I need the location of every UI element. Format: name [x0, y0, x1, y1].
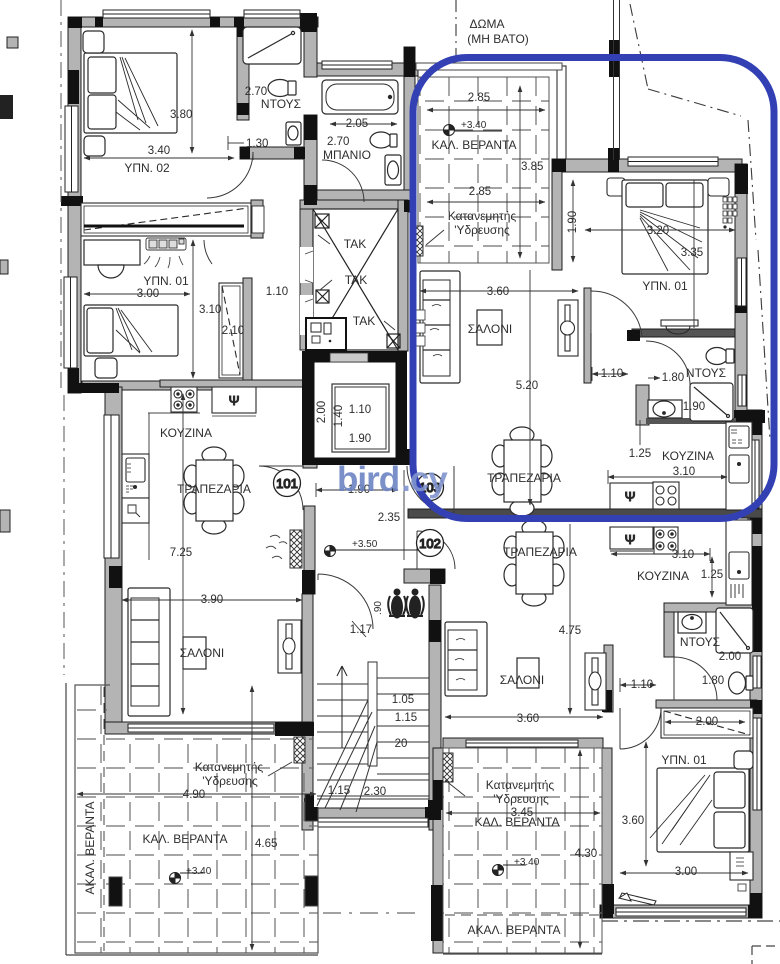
- svg-text:1.10: 1.10: [266, 286, 288, 298]
- svg-text:2.10: 2.10: [222, 325, 244, 337]
- svg-text:ΚΟΥΖΙΝΑ: ΚΟΥΖΙΝΑ: [662, 449, 714, 463]
- svg-text:Ψ: Ψ: [229, 393, 240, 408]
- svg-text:1.80: 1.80: [662, 372, 684, 384]
- svg-text:101: 101: [276, 476, 298, 491]
- svg-text:4.75: 4.75: [559, 625, 581, 637]
- svg-text:20: 20: [395, 738, 408, 750]
- svg-text:2.00: 2.00: [696, 716, 718, 728]
- svg-text:ΑΚΑΛ. ΒΕΡΑΝΤΑ: ΑΚΑΛ. ΒΕΡΑΝΤΑ: [468, 923, 561, 937]
- svg-text:1.15: 1.15: [395, 712, 417, 724]
- svg-text:2.85: 2.85: [469, 186, 491, 198]
- svg-text:+3.50: +3.50: [352, 539, 378, 550]
- svg-text:2.35: 2.35: [378, 512, 400, 524]
- svg-text:1.90: 1.90: [567, 211, 579, 233]
- svg-text:1.17: 1.17: [350, 624, 372, 636]
- svg-text:ΚΟΥΖΙΝΑ: ΚΟΥΖΙΝΑ: [160, 426, 212, 440]
- svg-text:102: 102: [419, 536, 441, 551]
- svg-text:1.05: 1.05: [392, 694, 414, 706]
- svg-text:ΚΑΛ. ΒΕΡΑΝΤΑ: ΚΑΛ. ΒΕΡΑΝΤΑ: [432, 138, 517, 152]
- svg-text:7.25: 7.25: [170, 547, 192, 559]
- svg-text:1.10: 1.10: [601, 368, 623, 380]
- svg-text:1.10: 1.10: [349, 404, 371, 416]
- svg-text:ΣΑΛΟΝΙ: ΣΑΛΟΝΙ: [468, 322, 513, 336]
- svg-text:3.60: 3.60: [517, 713, 539, 725]
- svg-text:.90: .90: [373, 601, 384, 615]
- svg-text:ΜΠΑΝΙΟ: ΜΠΑΝΙΟ: [323, 148, 371, 162]
- svg-text:ΥΠΝ. 01: ΥΠΝ. 01: [143, 274, 189, 288]
- svg-text:Ψ: Ψ: [625, 532, 636, 547]
- svg-text:3.00: 3.00: [137, 288, 159, 300]
- svg-text:ΣΑΛΟΝΙ: ΣΑΛΟΝΙ: [180, 646, 225, 660]
- svg-text:+3.40: +3.40: [461, 120, 487, 131]
- svg-text:ΝΤΟΥΣ: ΝΤΟΥΣ: [261, 97, 301, 111]
- svg-text:4.30: 4.30: [575, 848, 597, 860]
- svg-text:1.40: 1.40: [333, 405, 345, 427]
- svg-text:2.00: 2.00: [719, 651, 741, 663]
- svg-text:3.10: 3.10: [199, 304, 221, 316]
- svg-text:3.20: 3.20: [647, 225, 669, 237]
- svg-text:'Υδρευσης: 'Υδρευσης: [202, 774, 258, 788]
- svg-text:2.85: 2.85: [468, 92, 490, 104]
- svg-text:1.25: 1.25: [629, 448, 651, 460]
- svg-text:1.25: 1.25: [701, 569, 723, 581]
- svg-text:3.85: 3.85: [521, 161, 543, 173]
- svg-text:3.60: 3.60: [487, 286, 509, 298]
- svg-text:3.10: 3.10: [672, 549, 694, 561]
- svg-text:'Υδρευσης: 'Υδρευσης: [454, 223, 510, 237]
- svg-text:2.05: 2.05: [346, 118, 368, 130]
- svg-text:Κατανεμητής: Κατανεμητής: [486, 778, 555, 792]
- svg-text:ΑΚΑΛ. ΒΕΡΑΝΤΑ: ΑΚΑΛ. ΒΕΡΑΝΤΑ: [83, 802, 97, 895]
- svg-text:ΤΡΑΠΕΖΑΡΙΑ: ΤΡΑΠΕΖΑΡΙΑ: [487, 471, 561, 485]
- svg-text:ΝΤΟΥΣ: ΝΤΟΥΣ: [686, 366, 726, 380]
- svg-text:+3.40: +3.40: [514, 857, 540, 868]
- svg-text:2.70: 2.70: [327, 136, 349, 148]
- svg-text:ΥΠΝ. 02: ΥΠΝ. 02: [124, 161, 170, 175]
- svg-text:+3.40: +3.40: [186, 866, 212, 877]
- svg-text:Κατανεμητής: Κατανεμητής: [195, 760, 264, 774]
- svg-text:'Υδρευσης: 'Υδρευσης: [493, 792, 549, 806]
- svg-text:ΤΑΚ: ΤΑΚ: [353, 314, 375, 328]
- svg-text:ΝΤΟΥΣ: ΝΤΟΥΣ: [680, 635, 720, 649]
- svg-text:ΚΟΥΖΙΝΑ: ΚΟΥΖΙΝΑ: [637, 569, 689, 583]
- svg-text:3.90: 3.90: [201, 594, 223, 606]
- svg-text:1.10: 1.10: [631, 679, 653, 691]
- svg-text:ΥΠΝ. 01: ΥΠΝ. 01: [661, 753, 707, 767]
- svg-text:1.80: 1.80: [702, 675, 724, 687]
- svg-text:ΤΑΚ: ΤΑΚ: [345, 273, 367, 287]
- svg-text:1.30: 1.30: [246, 138, 268, 150]
- svg-text:ΣΑΛΟΝΙ: ΣΑΛΟΝΙ: [500, 673, 545, 687]
- svg-text:5.20: 5.20: [516, 380, 538, 392]
- svg-text:ΚΑΛ. ΒΕΡΑΝΤΑ: ΚΑΛ. ΒΕΡΑΝΤΑ: [143, 832, 228, 846]
- svg-text:3.60: 3.60: [622, 815, 644, 827]
- svg-text:Ψ: Ψ: [625, 489, 636, 504]
- svg-text:2.00: 2.00: [316, 401, 328, 423]
- svg-text:ΥΠΝ. 01: ΥΠΝ. 01: [642, 279, 688, 293]
- svg-text:3.40: 3.40: [148, 145, 170, 157]
- svg-text:bird.cy: bird.cy: [337, 460, 448, 499]
- svg-text:ΚΑΛ. ΒΕΡΑΝΤΑ: ΚΑΛ. ΒΕΡΑΝΤΑ: [475, 815, 560, 829]
- svg-text:3.80: 3.80: [170, 109, 192, 121]
- svg-text:4.65: 4.65: [255, 838, 277, 850]
- svg-text:3.00: 3.00: [675, 866, 697, 878]
- svg-text:1.15: 1.15: [328, 785, 350, 797]
- svg-text:ΔΩΜΑ: ΔΩΜΑ: [470, 17, 505, 31]
- svg-text:ΤΑΚ: ΤΑΚ: [344, 237, 366, 251]
- svg-text:ΤΡΑΠΕΖΑΡΙΑ: ΤΡΑΠΕΖΑΡΙΑ: [177, 482, 251, 496]
- svg-text:3.10: 3.10: [673, 466, 695, 478]
- svg-text:ΤΡΑΠΕΖΑΡΙΑ: ΤΡΑΠΕΖΑΡΙΑ: [503, 545, 577, 559]
- svg-text:(ΜΗ ΒΑΤΟ): (ΜΗ ΒΑΤΟ): [467, 32, 529, 46]
- svg-text:1.90: 1.90: [349, 433, 371, 445]
- svg-text:Κατανεμητής: Κατανεμητής: [448, 209, 517, 223]
- svg-text:2.30: 2.30: [364, 786, 386, 798]
- svg-text:3.35: 3.35: [681, 247, 703, 259]
- svg-text:4.90: 4.90: [183, 789, 205, 801]
- svg-text:1.90: 1.90: [683, 401, 705, 413]
